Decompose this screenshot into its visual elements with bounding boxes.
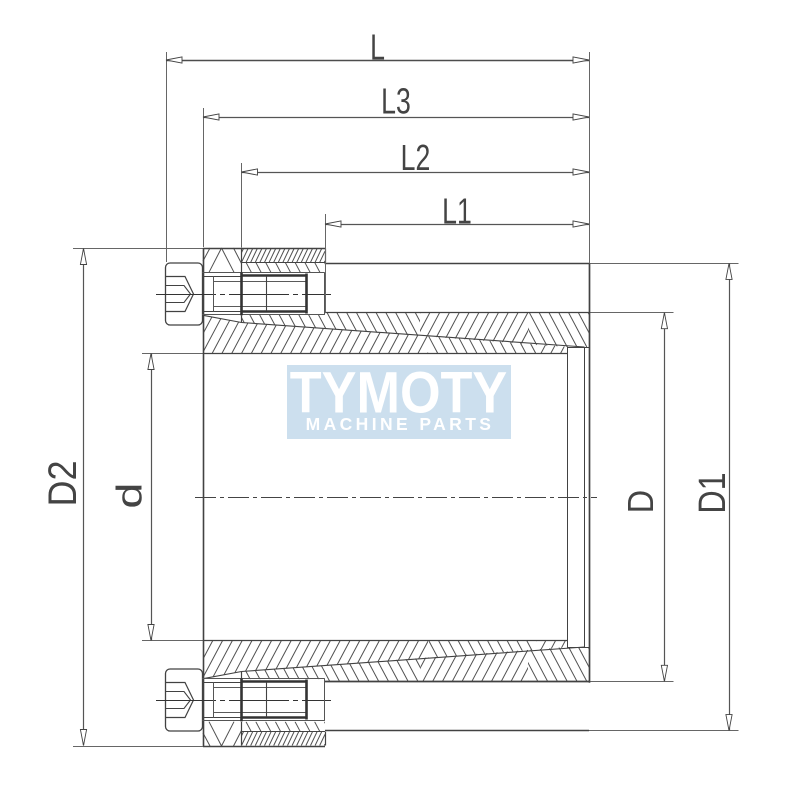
svg-text:MACHINE PARTS: MACHINE PARTS: [306, 414, 495, 434]
svg-text:D1: D1: [692, 472, 734, 513]
svg-text:D2: D2: [41, 460, 85, 506]
svg-text:L: L: [370, 26, 385, 67]
svg-text:L2: L2: [401, 137, 431, 178]
svg-text:L1: L1: [442, 190, 472, 231]
svg-text:d: d: [109, 483, 150, 509]
svg-text:L3: L3: [381, 80, 411, 121]
svg-text:D: D: [621, 490, 661, 513]
